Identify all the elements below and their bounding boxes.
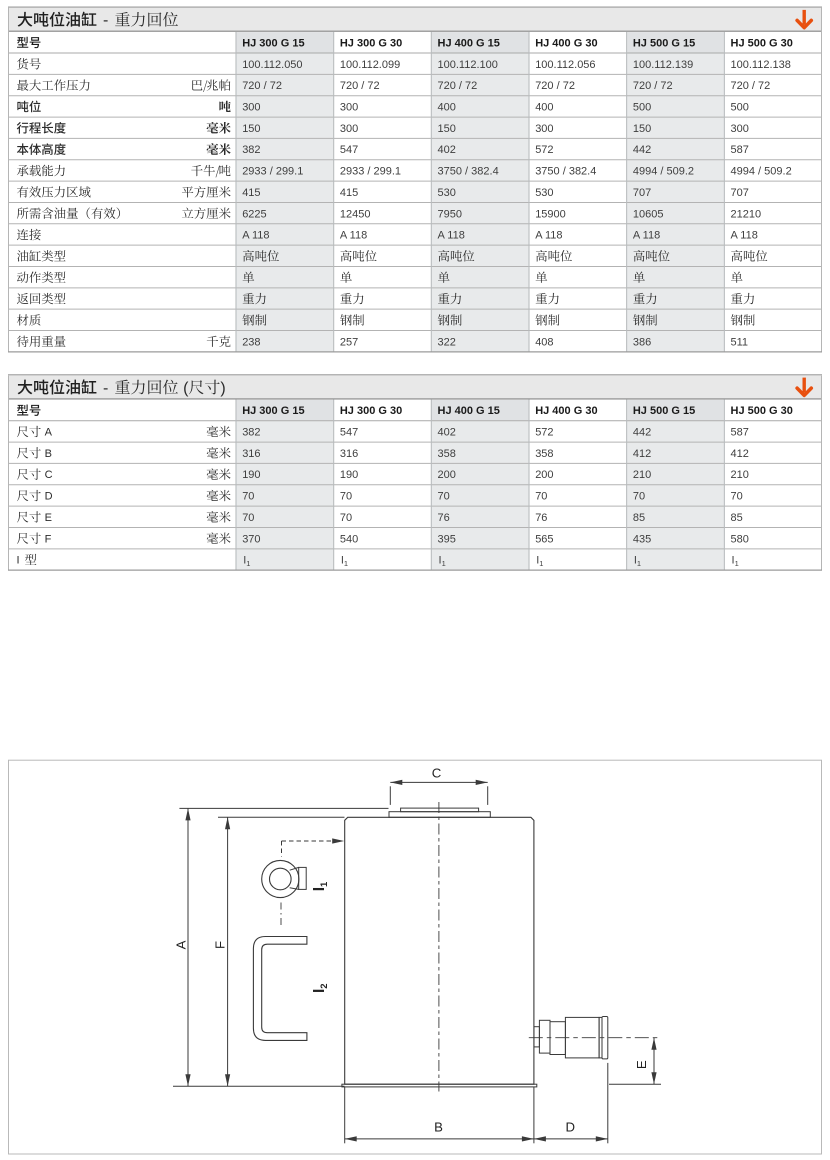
svg-text:70: 70 xyxy=(731,491,743,503)
svg-text:70: 70 xyxy=(340,491,352,503)
svg-text:412: 412 xyxy=(633,448,651,460)
svg-text:200: 200 xyxy=(438,469,456,481)
svg-text:511: 511 xyxy=(731,336,749,348)
svg-text:70: 70 xyxy=(438,491,450,503)
svg-text:D: D xyxy=(566,1119,576,1134)
svg-text:382: 382 xyxy=(242,144,260,156)
svg-text:100.112.099: 100.112.099 xyxy=(340,59,400,71)
svg-text:386: 386 xyxy=(633,336,651,348)
svg-text:2933 / 299.1: 2933 / 299.1 xyxy=(242,166,303,178)
svg-text:720 / 72: 720 / 72 xyxy=(535,80,575,92)
svg-text:76: 76 xyxy=(438,512,450,524)
svg-text:707: 707 xyxy=(731,187,749,199)
svg-text:12450: 12450 xyxy=(340,208,371,220)
svg-text:I1: I1 xyxy=(536,555,543,569)
svg-text:100.112.139: 100.112.139 xyxy=(633,59,693,71)
svg-text:300: 300 xyxy=(535,123,553,135)
svg-text:10605: 10605 xyxy=(633,208,664,220)
svg-text:HJ 500 G 15: HJ 500 G 15 xyxy=(633,38,695,50)
svg-text:530: 530 xyxy=(535,187,553,199)
svg-text:HJ 500 G 15: HJ 500 G 15 xyxy=(633,405,695,417)
svg-text:I1: I1 xyxy=(341,555,348,569)
svg-text:358: 358 xyxy=(438,448,456,460)
svg-text:358: 358 xyxy=(535,448,553,460)
svg-text:300: 300 xyxy=(242,102,260,114)
svg-text:408: 408 xyxy=(535,336,553,348)
svg-text:15900: 15900 xyxy=(535,208,566,220)
svg-text:A: A xyxy=(45,427,53,439)
svg-text:415: 415 xyxy=(242,187,260,199)
svg-text:70: 70 xyxy=(633,491,645,503)
svg-text:382: 382 xyxy=(242,427,260,439)
svg-text:547: 547 xyxy=(340,144,358,156)
svg-text:200: 200 xyxy=(535,469,553,481)
svg-text:HJ 400 G 30: HJ 400 G 30 xyxy=(535,38,597,50)
svg-text:A 118: A 118 xyxy=(731,230,758,242)
svg-text:F: F xyxy=(45,533,52,545)
svg-text:F: F xyxy=(213,941,228,949)
svg-text:B: B xyxy=(434,1119,443,1134)
svg-text:402: 402 xyxy=(438,427,456,439)
svg-text:316: 316 xyxy=(340,448,358,460)
svg-text:21210: 21210 xyxy=(731,208,762,220)
svg-text:70: 70 xyxy=(340,512,352,524)
svg-text:720 / 72: 720 / 72 xyxy=(438,80,478,92)
svg-text:I: I xyxy=(17,555,20,567)
svg-text:322: 322 xyxy=(438,336,456,348)
svg-text:150: 150 xyxy=(242,123,260,135)
svg-text:720 / 72: 720 / 72 xyxy=(340,80,380,92)
svg-text:442: 442 xyxy=(633,427,651,439)
svg-text:720 / 72: 720 / 72 xyxy=(633,80,673,92)
svg-text:190: 190 xyxy=(242,469,260,481)
svg-text:400: 400 xyxy=(535,102,553,114)
svg-text:HJ 400 G 15: HJ 400 G 15 xyxy=(438,38,500,50)
svg-text:300: 300 xyxy=(340,123,358,135)
svg-text:316: 316 xyxy=(242,448,260,460)
svg-text:500: 500 xyxy=(633,102,651,114)
svg-text:C: C xyxy=(45,469,53,481)
svg-text:565: 565 xyxy=(535,533,553,545)
svg-text:3750 / 382.4: 3750 / 382.4 xyxy=(535,166,596,178)
svg-text:100.112.100: 100.112.100 xyxy=(438,59,498,71)
svg-text:85: 85 xyxy=(731,512,743,524)
svg-text:4994 / 509.2: 4994 / 509.2 xyxy=(633,166,694,178)
svg-text:4994 / 509.2: 4994 / 509.2 xyxy=(731,166,792,178)
svg-text:395: 395 xyxy=(438,533,456,545)
svg-text:442: 442 xyxy=(633,144,651,156)
svg-text:238: 238 xyxy=(242,336,260,348)
svg-text:HJ 300 G 15: HJ 300 G 15 xyxy=(242,405,304,417)
svg-text:150: 150 xyxy=(633,123,651,135)
svg-text:530: 530 xyxy=(438,187,456,199)
svg-text:587: 587 xyxy=(731,144,749,156)
svg-text:370: 370 xyxy=(242,533,260,545)
svg-text:-: - xyxy=(103,380,108,397)
svg-text:C: C xyxy=(432,766,442,781)
svg-text:A 118: A 118 xyxy=(438,230,465,242)
svg-text:210: 210 xyxy=(731,469,749,481)
svg-text:E: E xyxy=(634,1060,649,1069)
svg-text:3750 / 382.4: 3750 / 382.4 xyxy=(438,166,499,178)
svg-text:300: 300 xyxy=(731,123,749,135)
svg-text:HJ 400 G 30: HJ 400 G 30 xyxy=(535,405,597,417)
svg-text:435: 435 xyxy=(633,533,651,545)
svg-text:587: 587 xyxy=(731,427,749,439)
svg-text:): ) xyxy=(220,380,225,397)
svg-text:190: 190 xyxy=(340,469,358,481)
svg-text:150: 150 xyxy=(438,123,456,135)
svg-text:I1: I1 xyxy=(732,555,739,569)
svg-text:7950: 7950 xyxy=(438,208,462,220)
svg-text:580: 580 xyxy=(731,533,749,545)
svg-text:500: 500 xyxy=(731,102,749,114)
svg-text:100.112.056: 100.112.056 xyxy=(535,59,595,71)
svg-text:415: 415 xyxy=(340,187,358,199)
svg-text:HJ 500 G 30: HJ 500 G 30 xyxy=(731,38,793,50)
svg-text:572: 572 xyxy=(535,427,553,439)
svg-text:76: 76 xyxy=(535,512,547,524)
svg-text:A 118: A 118 xyxy=(633,230,660,242)
svg-text:HJ 400 G 15: HJ 400 G 15 xyxy=(438,405,500,417)
svg-text:300: 300 xyxy=(340,102,358,114)
svg-text:70: 70 xyxy=(242,512,254,524)
svg-text:HJ 300 G 30: HJ 300 G 30 xyxy=(340,405,402,417)
svg-text:100.112.138: 100.112.138 xyxy=(731,59,791,71)
svg-text:85: 85 xyxy=(633,512,645,524)
svg-text:-: - xyxy=(103,12,108,29)
svg-text:100.112.050: 100.112.050 xyxy=(242,59,302,71)
svg-text:HJ 500 G 30: HJ 500 G 30 xyxy=(731,405,793,417)
svg-text:572: 572 xyxy=(535,144,553,156)
svg-text:400: 400 xyxy=(438,102,456,114)
svg-text:720 / 72: 720 / 72 xyxy=(731,80,771,92)
svg-text:210: 210 xyxy=(633,469,651,481)
svg-text:720 / 72: 720 / 72 xyxy=(242,80,282,92)
svg-text:(: ( xyxy=(183,380,189,397)
svg-text:A 118: A 118 xyxy=(242,230,269,242)
svg-text:540: 540 xyxy=(340,533,358,545)
svg-text:70: 70 xyxy=(535,491,547,503)
svg-text:B: B xyxy=(45,448,52,460)
svg-text:D: D xyxy=(45,491,53,503)
svg-text:707: 707 xyxy=(633,187,651,199)
svg-text:E: E xyxy=(45,512,52,524)
svg-text:A: A xyxy=(174,940,189,949)
svg-text:257: 257 xyxy=(340,336,358,348)
svg-text:2933 / 299.1: 2933 / 299.1 xyxy=(340,166,401,178)
svg-text:A 118: A 118 xyxy=(535,230,562,242)
svg-text:402: 402 xyxy=(438,144,456,156)
svg-text:547: 547 xyxy=(340,427,358,439)
svg-text:HJ 300 G 15: HJ 300 G 15 xyxy=(242,38,304,50)
svg-text:A 118: A 118 xyxy=(340,230,367,242)
svg-text:HJ 300 G 30: HJ 300 G 30 xyxy=(340,38,402,50)
svg-text:70: 70 xyxy=(242,491,254,503)
svg-text:412: 412 xyxy=(731,448,749,460)
svg-text:6225: 6225 xyxy=(242,208,266,220)
